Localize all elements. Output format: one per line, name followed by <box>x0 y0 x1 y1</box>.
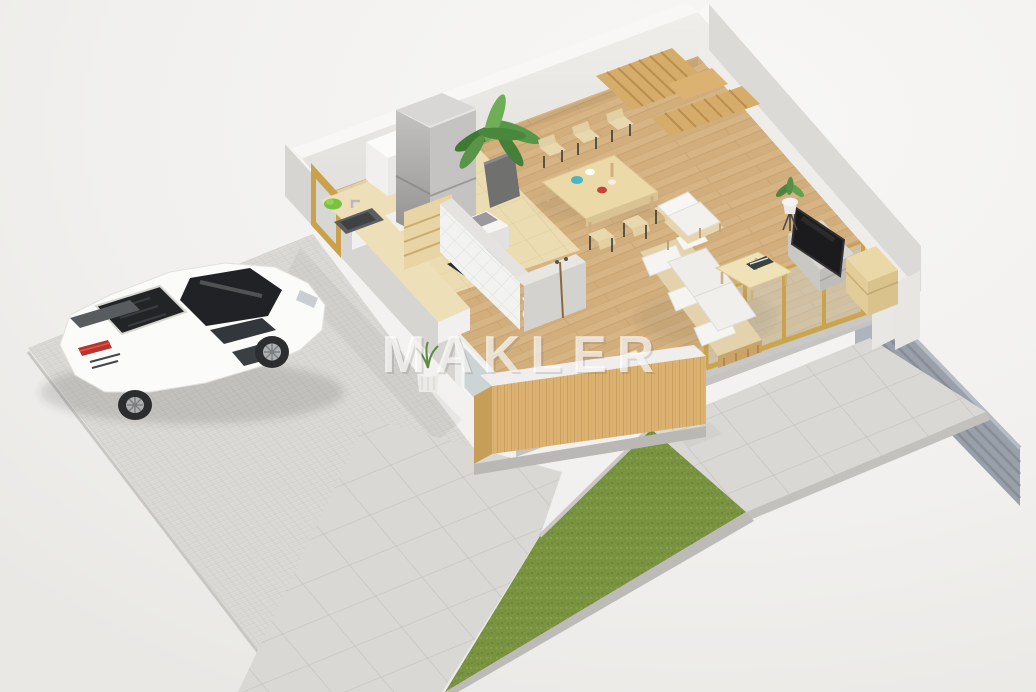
fruit-bowl <box>324 199 342 210</box>
car-rear-wheel <box>118 390 152 420</box>
floor-plan-render: MAKLER MAKLER <box>0 0 1036 692</box>
car-front-wheel <box>255 336 289 368</box>
watermark: MAKLER MAKLER <box>382 326 666 386</box>
watermark-text: MAKLER <box>382 326 664 384</box>
